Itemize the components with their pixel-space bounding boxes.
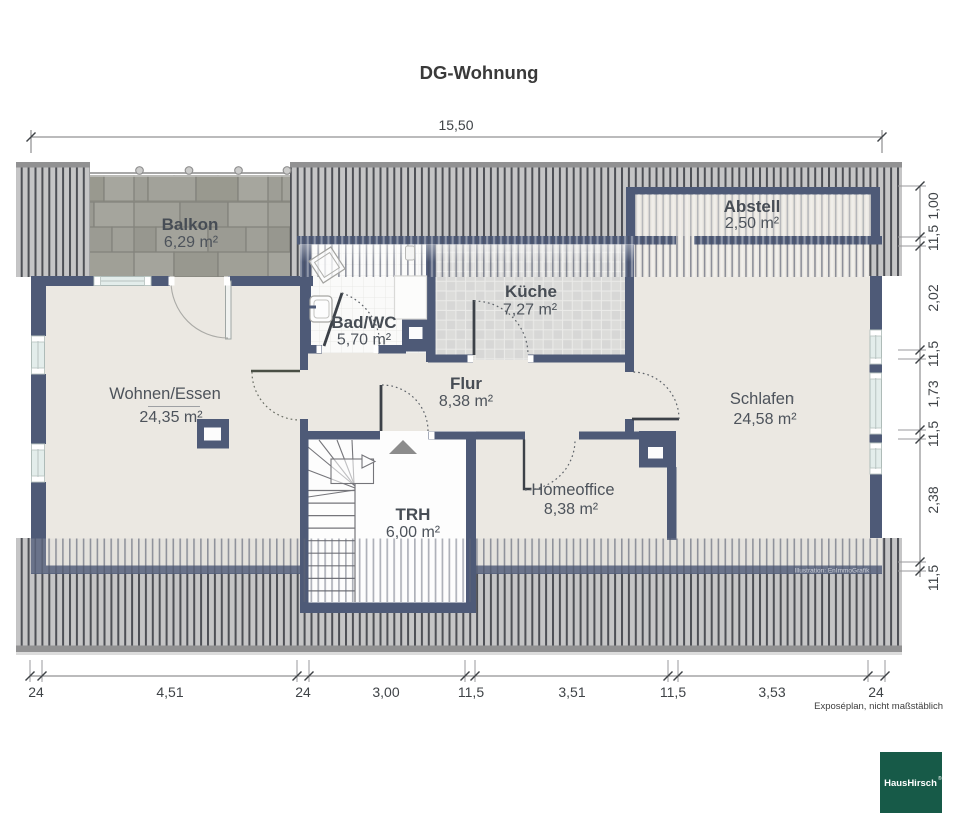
svg-text:4,51: 4,51: [156, 684, 183, 700]
svg-text:15,50: 15,50: [438, 117, 473, 133]
svg-text:24: 24: [28, 684, 44, 700]
svg-text:3,53: 3,53: [758, 684, 785, 700]
svg-text:11,5: 11,5: [925, 565, 941, 591]
svg-text:2,02: 2,02: [925, 284, 941, 311]
svg-text:11,5: 11,5: [458, 684, 484, 700]
svg-text:3,51: 3,51: [558, 684, 585, 700]
svg-text:HausHirsch: HausHirsch: [884, 778, 937, 789]
svg-text:Exposéplan, nicht maßstäblich: Exposéplan, nicht maßstäblich: [814, 701, 943, 712]
svg-text:6,00 m²: 6,00 m²: [386, 524, 441, 541]
svg-text:Homeoffice: Homeoffice: [531, 481, 614, 499]
svg-text:11,5: 11,5: [660, 684, 686, 700]
svg-text:Abstell: Abstell: [724, 197, 781, 216]
svg-text:Bad/WC: Bad/WC: [331, 313, 396, 332]
svg-text:24: 24: [868, 684, 884, 700]
svg-text:24,58 m²: 24,58 m²: [733, 411, 797, 428]
svg-text:8,38 m²: 8,38 m²: [544, 501, 599, 518]
svg-text:3,00: 3,00: [372, 684, 399, 700]
svg-text:Wohnen/Essen: Wohnen/Essen: [109, 385, 221, 403]
svg-text:6,29 m²: 6,29 m²: [164, 234, 219, 251]
svg-text:Schlafen: Schlafen: [730, 390, 794, 408]
svg-text:11,5: 11,5: [925, 341, 941, 367]
svg-text:2,50 m²: 2,50 m²: [725, 215, 780, 232]
svg-text:7,27 m²: 7,27 m²: [503, 302, 558, 319]
svg-text:Flur: Flur: [450, 374, 482, 393]
svg-text:24,35 m²: 24,35 m²: [139, 409, 203, 426]
svg-text:1,00: 1,00: [925, 192, 941, 219]
svg-text:Balkon: Balkon: [162, 215, 219, 234]
svg-text:DG-Wohnung: DG-Wohnung: [420, 62, 539, 83]
svg-text:5,70 m²: 5,70 m²: [337, 332, 392, 349]
svg-text:1,73: 1,73: [925, 380, 941, 407]
svg-text:24: 24: [295, 684, 311, 700]
svg-text:Küche: Küche: [505, 282, 557, 301]
svg-text:®: ®: [938, 775, 942, 782]
svg-text:11,5: 11,5: [925, 421, 941, 447]
svg-text:TRH: TRH: [396, 505, 431, 524]
svg-text:Illustration: EnImmoGrafik: Illustration: EnImmoGrafik: [795, 568, 871, 575]
svg-text:8,38 m²: 8,38 m²: [439, 393, 494, 410]
svg-text:2,38: 2,38: [925, 486, 941, 513]
svg-text:11,5: 11,5: [925, 225, 941, 251]
